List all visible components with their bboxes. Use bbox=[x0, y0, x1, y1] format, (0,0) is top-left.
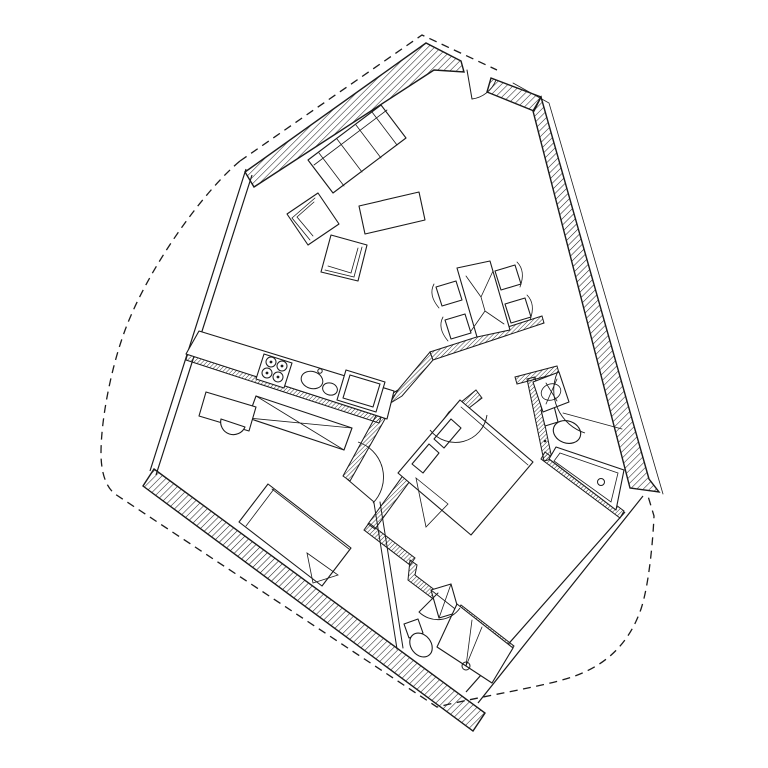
coffee-table bbox=[359, 192, 425, 234]
dining-chair-1 bbox=[436, 281, 462, 306]
floor-plan-canvas bbox=[0, 0, 768, 768]
stove-burner-dot-3 bbox=[266, 372, 269, 375]
bathtub bbox=[549, 447, 624, 510]
floor-plan-layers bbox=[101, 35, 663, 731]
partition-corridor-west bbox=[343, 412, 385, 481]
dining-chair-3 bbox=[495, 265, 521, 290]
floor-plan bbox=[0, 0, 768, 768]
entry-door-leaf bbox=[467, 70, 472, 99]
stove-burner-dot-4 bbox=[277, 376, 280, 379]
toilet-1-button bbox=[544, 440, 547, 443]
partition-bedroom-south bbox=[364, 523, 415, 565]
room2-door-leaf bbox=[347, 479, 374, 502]
dining-chair-2 bbox=[445, 314, 471, 339]
armchair-2 bbox=[321, 235, 367, 281]
exterior-wall-east bbox=[533, 97, 659, 492]
stove-burner-dot-2 bbox=[281, 365, 284, 368]
single-bed bbox=[239, 484, 351, 586]
dining-chair-4 bbox=[505, 298, 531, 323]
stove-burner-dot-1 bbox=[270, 361, 273, 364]
